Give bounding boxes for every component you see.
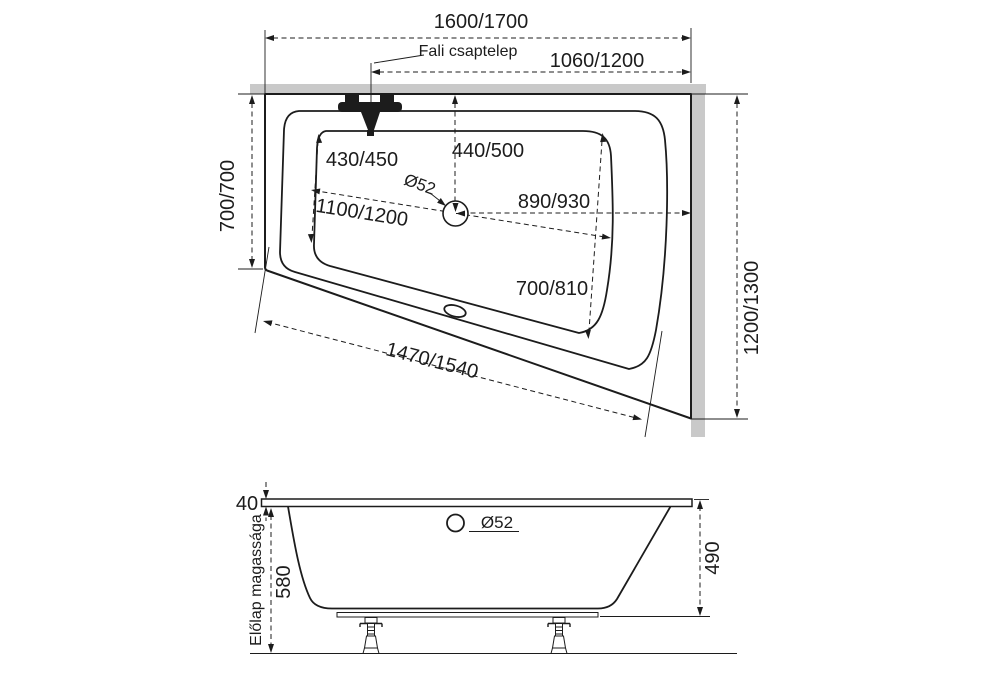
dim-basin-right-depth-text: 700/810 (516, 278, 588, 300)
dim-front-panel-height: Előlap magassága 580 (248, 508, 295, 653)
support-frame (337, 613, 598, 618)
faucet-label-text: Fali csaptelep (419, 43, 518, 60)
dim-faucet-to-corner-text: 1060/1200 (550, 50, 645, 72)
dim-inner-depth-text: 490 (702, 541, 724, 574)
side-view: Ø52 40 Előlap magassága 580 490 (236, 482, 737, 654)
plan-view: 1600/1700 Fali csaptelep 1060/1200 700/7… (217, 11, 763, 437)
overflow-hole (447, 515, 464, 532)
dim-inner-depth: 490 (600, 500, 724, 617)
dim-basin-length-text: 1100/1200 (314, 195, 409, 231)
side-rim-band (262, 499, 693, 507)
dim-front-edge: 1470/1540 (255, 247, 662, 437)
dim-front-panel-height-text: 580 (273, 565, 295, 598)
dim-drain-to-corner-text: 890/930 (518, 191, 590, 213)
dim-side-width-text: 700/700 (217, 160, 239, 232)
drain-hole (443, 201, 468, 226)
front-panel-label-text: Előlap magassága (248, 514, 265, 646)
adjustable-foot-left (360, 618, 382, 654)
dim-drain-to-corner: 890/930 (462, 191, 691, 216)
overflow-diameter-text: Ø52 (481, 513, 513, 532)
technical-drawing-canvas: 1600/1700 Fali csaptelep 1060/1200 700/7… (0, 0, 990, 675)
dim-front-edge-text: 1470/1540 (383, 338, 480, 383)
drain-diameter-text: Ø52 (401, 170, 438, 199)
drain-diameter-callout: Ø52 (401, 170, 447, 208)
dim-basin-right-depth: 700/810 (516, 133, 606, 339)
side-body-profile (288, 507, 671, 609)
overflow-callout: Ø52 (447, 513, 519, 532)
dim-overall-width: 1200/1300 (734, 95, 763, 418)
dim-side-width: 700/700 (217, 95, 263, 269)
dim-overall-width-text: 1200/1300 (741, 261, 763, 356)
dim-rim-thickness-text: 40 (236, 493, 258, 515)
technical-drawing-page: 1600/1700 Fali csaptelep 1060/1200 700/7… (0, 0, 990, 675)
faucet-symbol (338, 94, 402, 136)
dim-drain-from-wall-text: 440/500 (452, 140, 524, 162)
dim-overall-length-text: 1600/1700 (434, 11, 529, 33)
adjustable-foot-right (548, 618, 570, 654)
dim-basin-left-depth-text: 430/450 (326, 149, 398, 171)
